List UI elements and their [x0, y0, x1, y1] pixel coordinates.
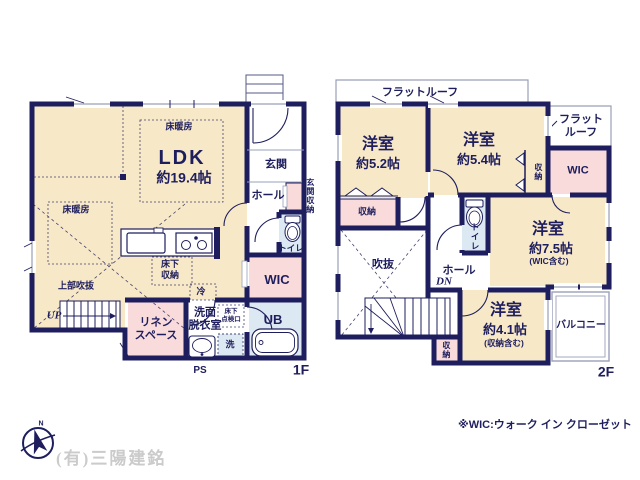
label-ldk: LDK	[158, 146, 205, 170]
wic-note: ※WIC:ウォーク イン クローゼット	[458, 416, 632, 432]
compass-north-label: N	[38, 421, 43, 430]
label-room-a-size: 約5.2帖	[356, 156, 400, 172]
company-watermark: (有)三陽建銘	[56, 444, 166, 469]
label-storage-west: 収納	[358, 207, 376, 218]
stairs-2f	[365, 298, 450, 337]
label-balcony: バルコニー	[556, 320, 606, 332]
label-room-c-size: 約7.5帖	[529, 241, 573, 257]
stairs-1f	[60, 301, 120, 330]
label-toilet-2f: トイレ	[470, 223, 480, 252]
label-void: 吹抜	[372, 258, 394, 271]
label-washer: 洗	[225, 340, 234, 351]
label-floor-heating-b: 床暖房	[62, 205, 89, 216]
label-storage-upper: 収納	[533, 163, 543, 181]
label-flat-roof-top: フラットルーフ	[382, 86, 458, 99]
label-fridge: 冷	[196, 287, 205, 298]
label-room-b: 洋室	[463, 131, 495, 151]
label-room-d-size: 約4.1帖	[483, 322, 527, 338]
label-upper-void: 上部吹抜	[58, 281, 94, 292]
room-b-fill	[430, 107, 548, 195]
label-floor-heating-a: 床暖房	[165, 122, 192, 133]
label-toilet-1f: トイレ	[278, 243, 304, 253]
label-stairs-down: DN	[436, 275, 452, 288]
toilet-icon-1f	[285, 216, 300, 242]
label-ub: UB	[264, 312, 283, 328]
compass-icon	[21, 428, 55, 458]
kitchen-counter	[121, 228, 215, 256]
label-storage-south: 収納	[441, 341, 451, 359]
label-room-c-note: (WIC含む)	[529, 256, 568, 266]
washbasin-icon	[189, 336, 215, 357]
label-wic-2f: WIC	[567, 164, 588, 177]
guide-corner-square	[120, 174, 126, 180]
label-entrance: 玄関	[265, 158, 287, 171]
label-hall-1f: ホール	[252, 189, 285, 202]
label-underfloor-hatch: 床下 点検口	[221, 308, 241, 324]
room-ldk-fill	[32, 104, 247, 330]
label-wic-1f: WIC	[264, 272, 289, 288]
label-ldk-size: 約19.4帖	[156, 169, 211, 186]
wic1f-slide-door	[242, 261, 247, 287]
label-pipe-space: PS	[193, 365, 206, 377]
floorplan-drawing	[0, 0, 640, 480]
label-floor-1f: 1F	[293, 361, 309, 378]
label-entrance-storage: 玄関収納	[305, 178, 315, 214]
bathtub-icon	[252, 329, 298, 356]
label-floor-2f: 2F	[598, 363, 614, 380]
label-linen: リネン スペース	[135, 317, 178, 344]
stove-icon	[176, 233, 212, 253]
label-flat-roof-right: フラット ルーフ	[559, 114, 603, 141]
label-underfloor-storage: 床下 収納	[161, 259, 179, 281]
label-stairs-up: UP	[47, 309, 62, 322]
label-room-d-note: (収納含む)	[484, 338, 524, 348]
label-room-b-size: 約5.4帖	[457, 152, 501, 168]
sink-icon	[127, 233, 165, 253]
floorplan-page: 床暖房 LDK 約19.4帖 床暖房 玄関 ホール 玄関収納 トイレ WIC U…	[0, 0, 640, 480]
label-room-a: 洋室	[362, 135, 394, 155]
label-washroom: 洗面 脱衣室	[189, 307, 222, 334]
label-room-d: 洋室	[490, 301, 522, 321]
label-room-c: 洋室	[532, 220, 564, 240]
room-entrance-storage-fill	[286, 183, 303, 210]
entrance-porch-steps	[246, 75, 283, 102]
